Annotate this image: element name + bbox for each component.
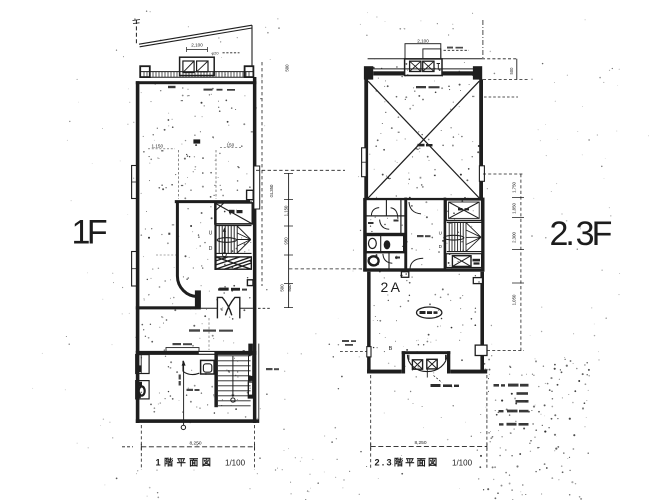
svg-text:GL350: GL350 <box>269 184 274 198</box>
svg-text:2,100: 2,100 <box>191 43 203 48</box>
svg-text:500: 500 <box>287 284 292 292</box>
svg-text:U: U <box>209 231 213 237</box>
svg-text:U: U <box>439 230 442 235</box>
svg-text:8,250: 8,250 <box>414 440 426 446</box>
svg-text:1,750: 1,750 <box>512 182 517 193</box>
svg-text:2.3階平面図: 2.3階平面図 <box>375 457 440 468</box>
svg-text:2,300: 2,300 <box>512 232 517 243</box>
svg-text:500: 500 <box>279 284 284 292</box>
svg-text:150: 150 <box>227 143 235 148</box>
svg-text:1,150: 1,150 <box>283 205 288 216</box>
svg-text:950: 950 <box>283 237 288 245</box>
svg-text:φ20: φ20 <box>212 51 220 56</box>
svg-text:1,850: 1,850 <box>512 203 517 214</box>
svg-text:2A: 2A <box>381 279 403 295</box>
svg-text:1,150: 1,150 <box>152 144 164 149</box>
svg-text:B: B <box>389 346 393 352</box>
svg-text:1階平面図: 1階平面図 <box>156 457 215 468</box>
svg-text:D: D <box>209 246 213 252</box>
svg-text:1F: 1F <box>72 214 107 252</box>
svg-text:1/100: 1/100 <box>225 458 246 467</box>
svg-text:1,050: 1,050 <box>512 294 517 305</box>
svg-text:1/100: 1/100 <box>452 458 473 467</box>
svg-text:8,250: 8,250 <box>189 441 201 447</box>
svg-text:500: 500 <box>509 67 514 75</box>
svg-text:2. 3F: 2. 3F <box>550 215 612 253</box>
svg-text:500: 500 <box>284 64 289 72</box>
svg-text:2,100: 2,100 <box>417 39 429 44</box>
